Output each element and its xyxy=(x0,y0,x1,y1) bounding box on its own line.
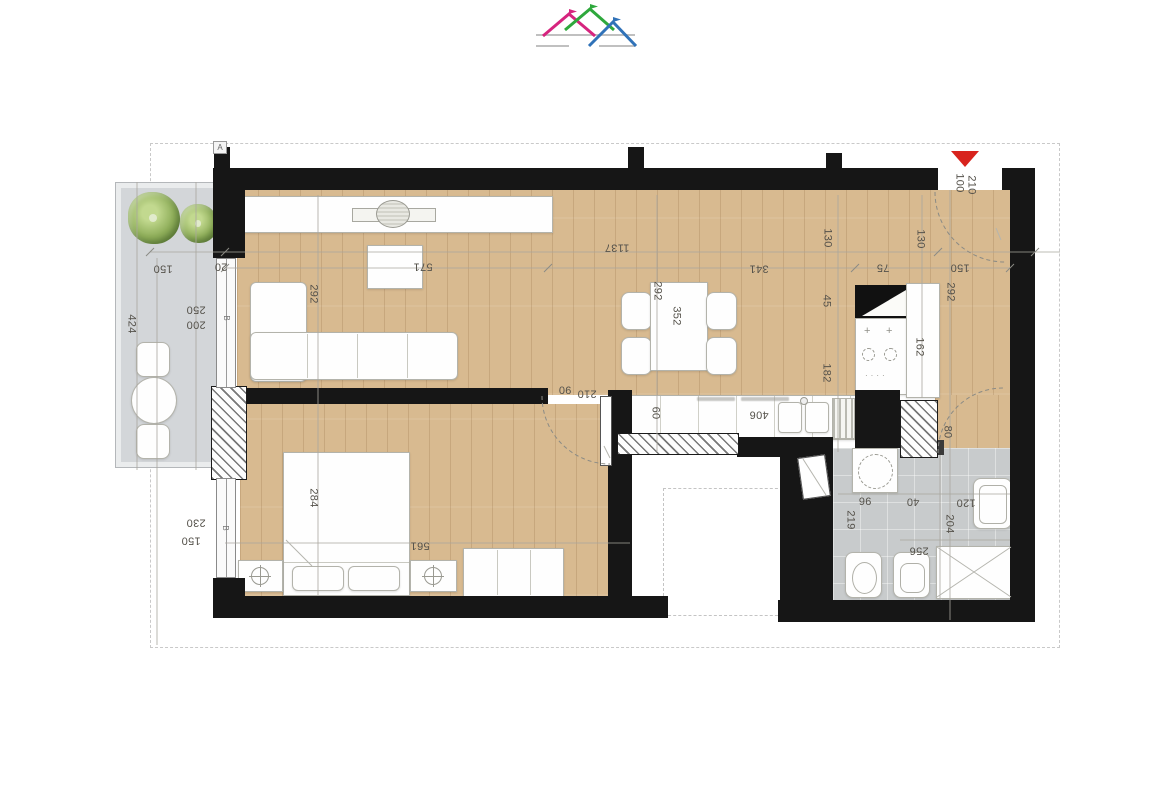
window xyxy=(216,258,236,388)
sofa-seam xyxy=(407,334,408,378)
appliance-grill xyxy=(832,398,855,439)
wall xyxy=(225,168,938,190)
terrace-chair xyxy=(136,342,170,377)
brand-logo xyxy=(533,4,638,52)
terrace-table xyxy=(131,377,177,424)
wardrobe-divider xyxy=(497,550,498,595)
wall xyxy=(213,596,668,618)
wall xyxy=(1010,168,1035,622)
wall xyxy=(240,388,548,404)
wardrobe xyxy=(463,548,564,597)
washbasin-bowl xyxy=(979,485,1007,524)
logo-flag-green xyxy=(590,4,598,9)
plant-icon xyxy=(128,192,180,244)
lamp-icon xyxy=(251,567,269,585)
window xyxy=(216,478,236,578)
counter-fineprint xyxy=(697,397,735,401)
burner-knobs: ···· xyxy=(865,372,888,380)
door-leaf-bathroom xyxy=(797,454,831,499)
faucet-icon xyxy=(800,397,808,405)
door-leaf-bedroom xyxy=(600,396,612,466)
terrace-chair xyxy=(136,424,170,459)
wall xyxy=(778,600,1035,622)
dining-chair xyxy=(706,292,737,330)
sofa xyxy=(250,332,458,380)
washing-machine-drum xyxy=(858,454,893,489)
wall xyxy=(213,168,245,258)
tv-icon xyxy=(376,200,410,228)
dining-table xyxy=(650,282,708,371)
logo-flag-blue xyxy=(613,17,621,22)
dining-chair xyxy=(621,292,652,330)
dining-chair xyxy=(621,337,652,375)
burner-icon: + xyxy=(886,326,892,337)
burner-icon xyxy=(862,348,875,361)
bidet-bowl xyxy=(900,563,925,593)
shower-tray xyxy=(936,546,1012,599)
lamp-icon xyxy=(424,567,442,585)
floorplan-canvas: + + ···· xyxy=(0,0,1170,785)
pillow xyxy=(292,566,344,591)
sink-basin xyxy=(778,402,802,433)
wall-pillar xyxy=(826,153,842,168)
door-leaf-corridor xyxy=(938,440,944,455)
wall-marker-box: A xyxy=(213,141,227,154)
hatched-wall xyxy=(617,433,739,455)
hatched-wall xyxy=(900,400,938,458)
sofa-seam xyxy=(357,334,358,378)
sink-basin xyxy=(805,402,829,433)
wall xyxy=(855,390,900,448)
tall-cabinet xyxy=(906,283,940,398)
sofa-seam xyxy=(307,334,308,378)
hatched-wall xyxy=(211,386,247,480)
counter-fineprint xyxy=(741,397,789,401)
pillow xyxy=(348,566,400,591)
stove: + + ···· xyxy=(855,318,908,395)
logo-flag-magenta xyxy=(569,9,577,14)
burner-icon xyxy=(884,348,897,361)
shaft-void xyxy=(663,488,783,616)
burner-icon: + xyxy=(864,326,870,337)
entry-corridor-floor xyxy=(935,395,1012,455)
wall xyxy=(737,437,780,457)
wall-pillar xyxy=(628,147,644,168)
toilet-bowl xyxy=(852,562,877,594)
coffee-table xyxy=(367,245,423,289)
bed-blanket-line xyxy=(284,562,409,563)
wall-marker-letter: A xyxy=(217,143,222,152)
wardrobe-divider xyxy=(530,550,531,595)
entrance-arrow-icon xyxy=(951,151,979,167)
dining-chair xyxy=(706,337,737,375)
